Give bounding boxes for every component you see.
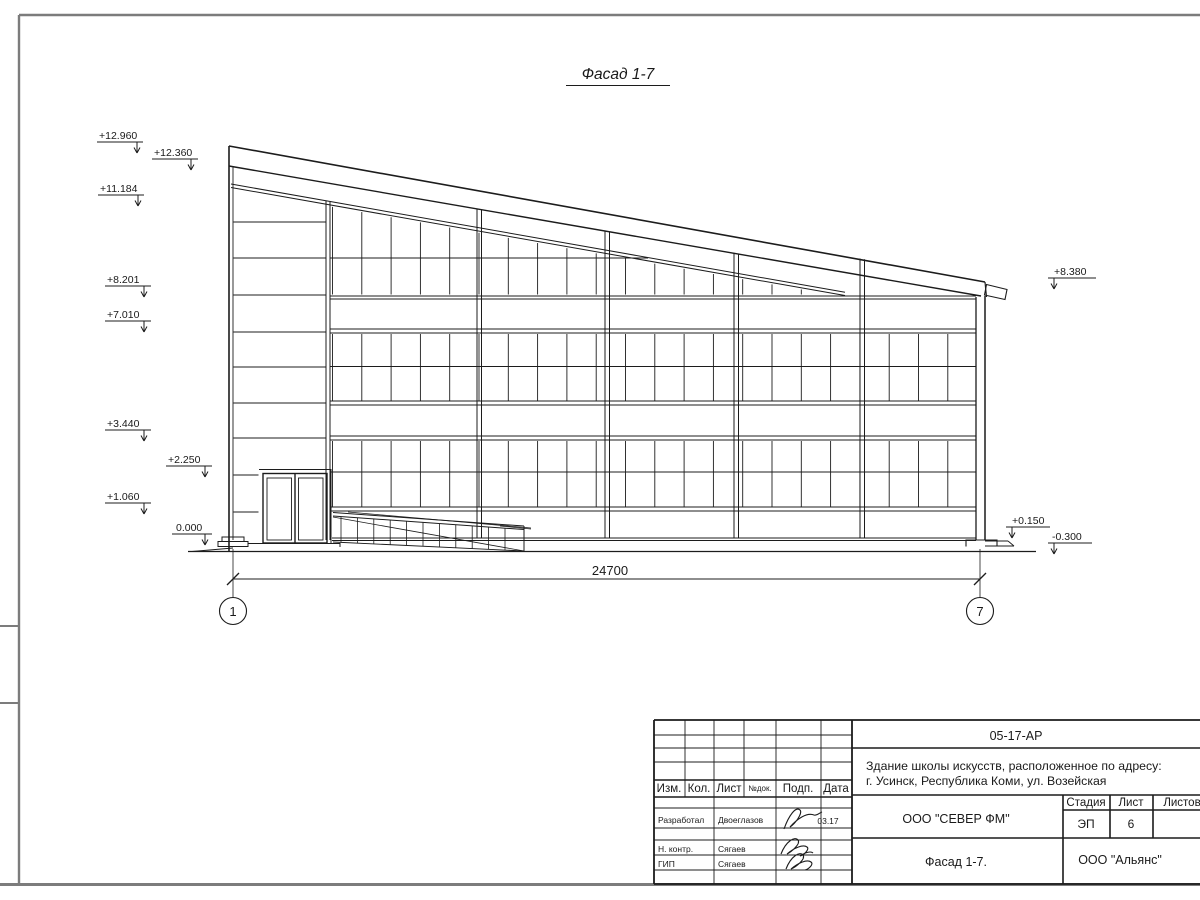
elevation-marks-left: +12.960 +12.360 +11.184 +8.201 +7.010 +3… — [97, 130, 212, 545]
svg-text:+7.010: +7.010 — [107, 309, 140, 321]
titleblock-roles: Разработал Двоеглазов 03.17 Н. контр. Ся… — [658, 809, 839, 870]
stage-label: Стадия — [1066, 797, 1105, 809]
svg-text:-0.300: -0.300 — [1052, 531, 1082, 543]
col-kol: Кол. — [688, 783, 711, 795]
role-ncontrol: Н. контр. — [658, 844, 693, 854]
elevation-mark: +0.150 — [1006, 515, 1050, 538]
svg-text:+11.184: +11.184 — [100, 183, 138, 195]
col-izm: Изм. — [657, 783, 682, 795]
view-title: Фасад 1-7 — [566, 66, 670, 86]
right-wall — [966, 296, 1014, 547]
sheet-label: Лист — [1119, 797, 1145, 809]
titleblock-header-row: Изм. Кол. Лист №док. Подп. Дата — [657, 783, 850, 795]
curtain-wall — [326, 201, 976, 541]
col-ndok: №док. — [748, 784, 771, 793]
elevation-marks-right: +8.380 +0.150 -0.300 — [1006, 266, 1096, 554]
elevation-mark: -0.300 — [1048, 531, 1092, 554]
doc-number: 05-17-АР — [990, 729, 1043, 743]
elevation-mark: +1.060 — [105, 491, 151, 514]
elevation-mark: +11.184 — [98, 183, 144, 206]
roof-overhang-end — [985, 285, 1008, 300]
dimension-text: 24700 — [592, 563, 628, 578]
facade-drawing-svg: Фасад 1-7 — [0, 0, 1200, 900]
col-podp: Подп. — [783, 783, 814, 795]
facade-elevation — [188, 146, 1036, 552]
sheets-total-label: Листов — [1163, 797, 1200, 809]
sheet-frame — [0, 15, 1200, 885]
elevation-mark: +2.250 — [166, 454, 212, 477]
elevation-mark: +8.380 — [1048, 266, 1096, 289]
svg-text:0.000: 0.000 — [176, 522, 202, 534]
left-tower — [218, 146, 326, 551]
elevation-mark: 0.000 — [172, 522, 212, 545]
ground-line — [188, 548, 1036, 552]
role-developer: Разработал — [658, 815, 704, 825]
signature-1 — [784, 809, 822, 829]
svg-text:+1.060: +1.060 — [107, 491, 140, 503]
svg-text:+8.380: +8.380 — [1054, 266, 1087, 278]
elevation-mark: +3.440 — [105, 418, 151, 441]
col-data: Дата — [823, 783, 849, 795]
role-ncontrol-name: Сягаев — [718, 844, 746, 854]
signature-2 — [781, 839, 813, 856]
org-name: ООО "СЕВЕР ФМ" — [902, 812, 1009, 826]
role-gip: ГИП — [658, 859, 675, 869]
roof-fascia — [229, 146, 1007, 300]
axis-bubbles: 1 7 — [220, 598, 994, 625]
role-developer-date: 03.17 — [817, 816, 839, 826]
title-block: Изм. Кол. Лист №док. Подп. Дата Разработ… — [654, 720, 1200, 884]
signature-3 — [786, 854, 812, 870]
drawing-sheet: Фасад 1-7 — [0, 0, 1200, 900]
role-gip-name: Сягаев — [718, 859, 746, 869]
contractor-name: ООО "Альянс" — [1078, 853, 1162, 867]
svg-text:+3.440: +3.440 — [107, 418, 140, 430]
entrance-step — [248, 544, 340, 548]
svg-text:+12.360: +12.360 — [154, 147, 192, 159]
right-plinth — [985, 541, 1014, 546]
dimension-line: 24700 — [227, 549, 986, 597]
svg-text:+8.201: +8.201 — [107, 274, 140, 286]
elevation-mark: +8.201 — [105, 274, 151, 297]
elevation-mark: +12.360 — [152, 147, 198, 170]
ramp — [333, 512, 531, 551]
sheet-value: 6 — [1128, 817, 1135, 831]
svg-text:+12.960: +12.960 — [99, 130, 137, 142]
project-name-line1: Здание школы искусств, расположенное по … — [866, 759, 1162, 773]
view-title-text: Фасад 1-7 — [582, 66, 656, 83]
view-name: Фасад 1-7. — [925, 855, 987, 869]
axis-label-7: 7 — [976, 604, 983, 619]
elevation-mark: +12.960 — [97, 130, 143, 153]
axis-label-1: 1 — [229, 604, 236, 619]
svg-text:+0.150: +0.150 — [1012, 515, 1045, 527]
project-name-line2: г. Усинск, Республика Коми, ул. Возейска… — [866, 774, 1106, 788]
svg-text:+2.250: +2.250 — [168, 454, 201, 466]
elevation-mark: +7.010 — [105, 309, 151, 332]
stage-value: ЭП — [1077, 817, 1094, 831]
role-developer-name: Двоеглазов — [718, 815, 764, 825]
col-list: Лист — [717, 783, 743, 795]
